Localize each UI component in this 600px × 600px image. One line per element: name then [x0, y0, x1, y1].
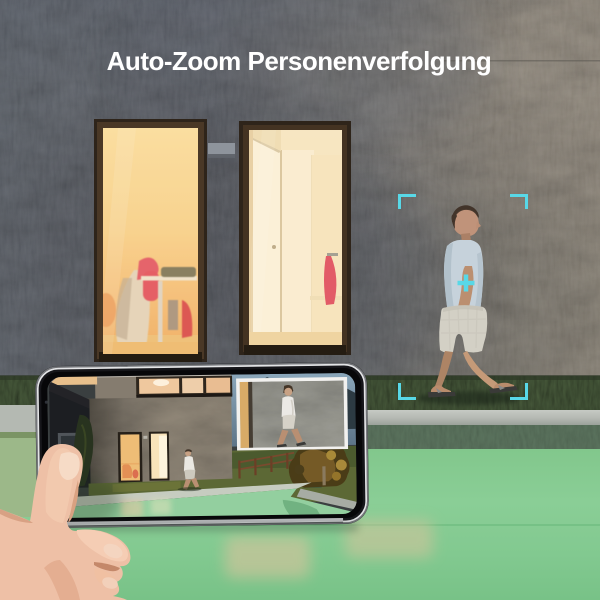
svg-text:Auto-Zoom Personenverfolgung: Auto-Zoom Personenverfolgung	[107, 46, 492, 76]
